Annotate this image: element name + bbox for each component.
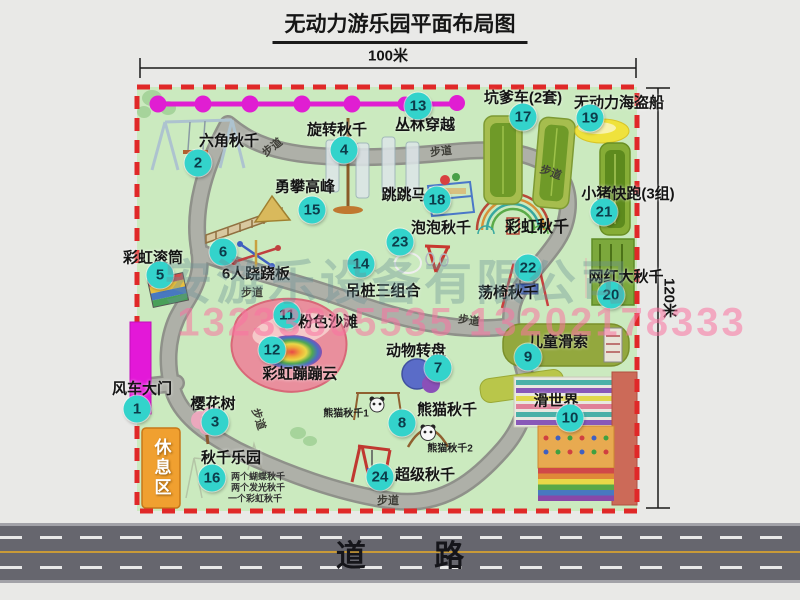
poi-marker-21[interactable]: 21 — [591, 199, 618, 226]
poi-label-1: 风车大门 — [112, 378, 172, 399]
path-label: 步道 — [538, 161, 564, 184]
poi-layer: 风车大门1六角秋千2樱花树3旋转秋千4彩虹滚筒56人跷跷板6动物转盘7熊猫秋千8… — [0, 0, 800, 600]
poi-label-22: 荡椅秋千 — [478, 282, 538, 303]
path-label: 步道 — [241, 284, 263, 300]
poi-marker-5[interactable]: 5 — [147, 262, 174, 289]
poi-label-11: 粉色沙滩 — [298, 311, 358, 332]
poi-marker-18[interactable]: 18 — [424, 187, 451, 214]
rest-area-label: 休息区 — [149, 438, 174, 498]
swing-park-note-3: 一个彩虹秋千 — [228, 492, 282, 505]
poi-marker-10[interactable]: 10 — [557, 405, 584, 432]
poi-marker-9[interactable]: 9 — [515, 344, 542, 371]
poi-marker-13[interactable]: 13 — [405, 93, 432, 120]
poi-label-8: 熊猫秋千 — [417, 399, 477, 420]
path-label: 步道 — [258, 134, 285, 160]
path-label: 步道 — [377, 492, 399, 508]
poi-label-2: 六角秋千 — [199, 130, 259, 151]
poi-marker-6[interactable]: 6 — [210, 239, 237, 266]
poi-marker-11[interactable]: 11 — [274, 302, 301, 329]
poi-label-24: 超级秋千 — [395, 464, 455, 485]
poi-label-15: 勇攀高峰 — [275, 176, 335, 197]
poi-label-18: 跳跳马 — [381, 184, 426, 205]
path-label: 步道 — [457, 311, 481, 330]
poi-marker-7[interactable]: 7 — [425, 355, 452, 382]
panda-swing-2-label: 熊猫秋千2 — [427, 440, 473, 455]
poi-marker-16[interactable]: 16 — [199, 465, 226, 492]
poi-label-23: 泡泡秋千 — [411, 217, 471, 238]
poi-marker-20[interactable]: 20 — [598, 282, 625, 309]
panda-swing-1-label: 熊猫秋千1 — [323, 405, 369, 420]
poi-marker-15[interactable]: 15 — [299, 197, 326, 224]
poi-label-12: 彩虹蹦蹦云 — [262, 363, 337, 384]
poi-marker-19[interactable]: 19 — [577, 105, 604, 132]
poi-marker-22[interactable]: 22 — [515, 255, 542, 282]
poi-label-20: 网红大秋千 — [588, 266, 663, 287]
path-label: 步道 — [248, 406, 270, 432]
path-label: 步道 — [429, 142, 453, 160]
poi-marker-2[interactable]: 2 — [185, 150, 212, 177]
poi-marker-3[interactable]: 3 — [202, 409, 229, 436]
poi-label-14: 吊桩三组合 — [345, 280, 420, 301]
poi-label-4: 旋转秋千 — [307, 119, 367, 140]
poi-marker-23[interactable]: 23 — [387, 229, 414, 256]
poi-marker-1[interactable]: 1 — [124, 396, 151, 423]
poi-marker-17[interactable]: 17 — [510, 104, 537, 131]
playground-map-page: 无动力游乐园平面布局图 — [0, 0, 800, 600]
poi-label-6: 6人跷跷板 — [222, 263, 290, 284]
poi-marker-14[interactable]: 14 — [348, 251, 375, 278]
poi-marker-24[interactable]: 24 — [367, 464, 394, 491]
rainbow-swing-label: 彩虹秋千 — [505, 213, 569, 237]
poi-marker-4[interactable]: 4 — [331, 137, 358, 164]
poi-marker-8[interactable]: 8 — [389, 410, 416, 437]
poi-marker-12[interactable]: 12 — [259, 337, 286, 364]
